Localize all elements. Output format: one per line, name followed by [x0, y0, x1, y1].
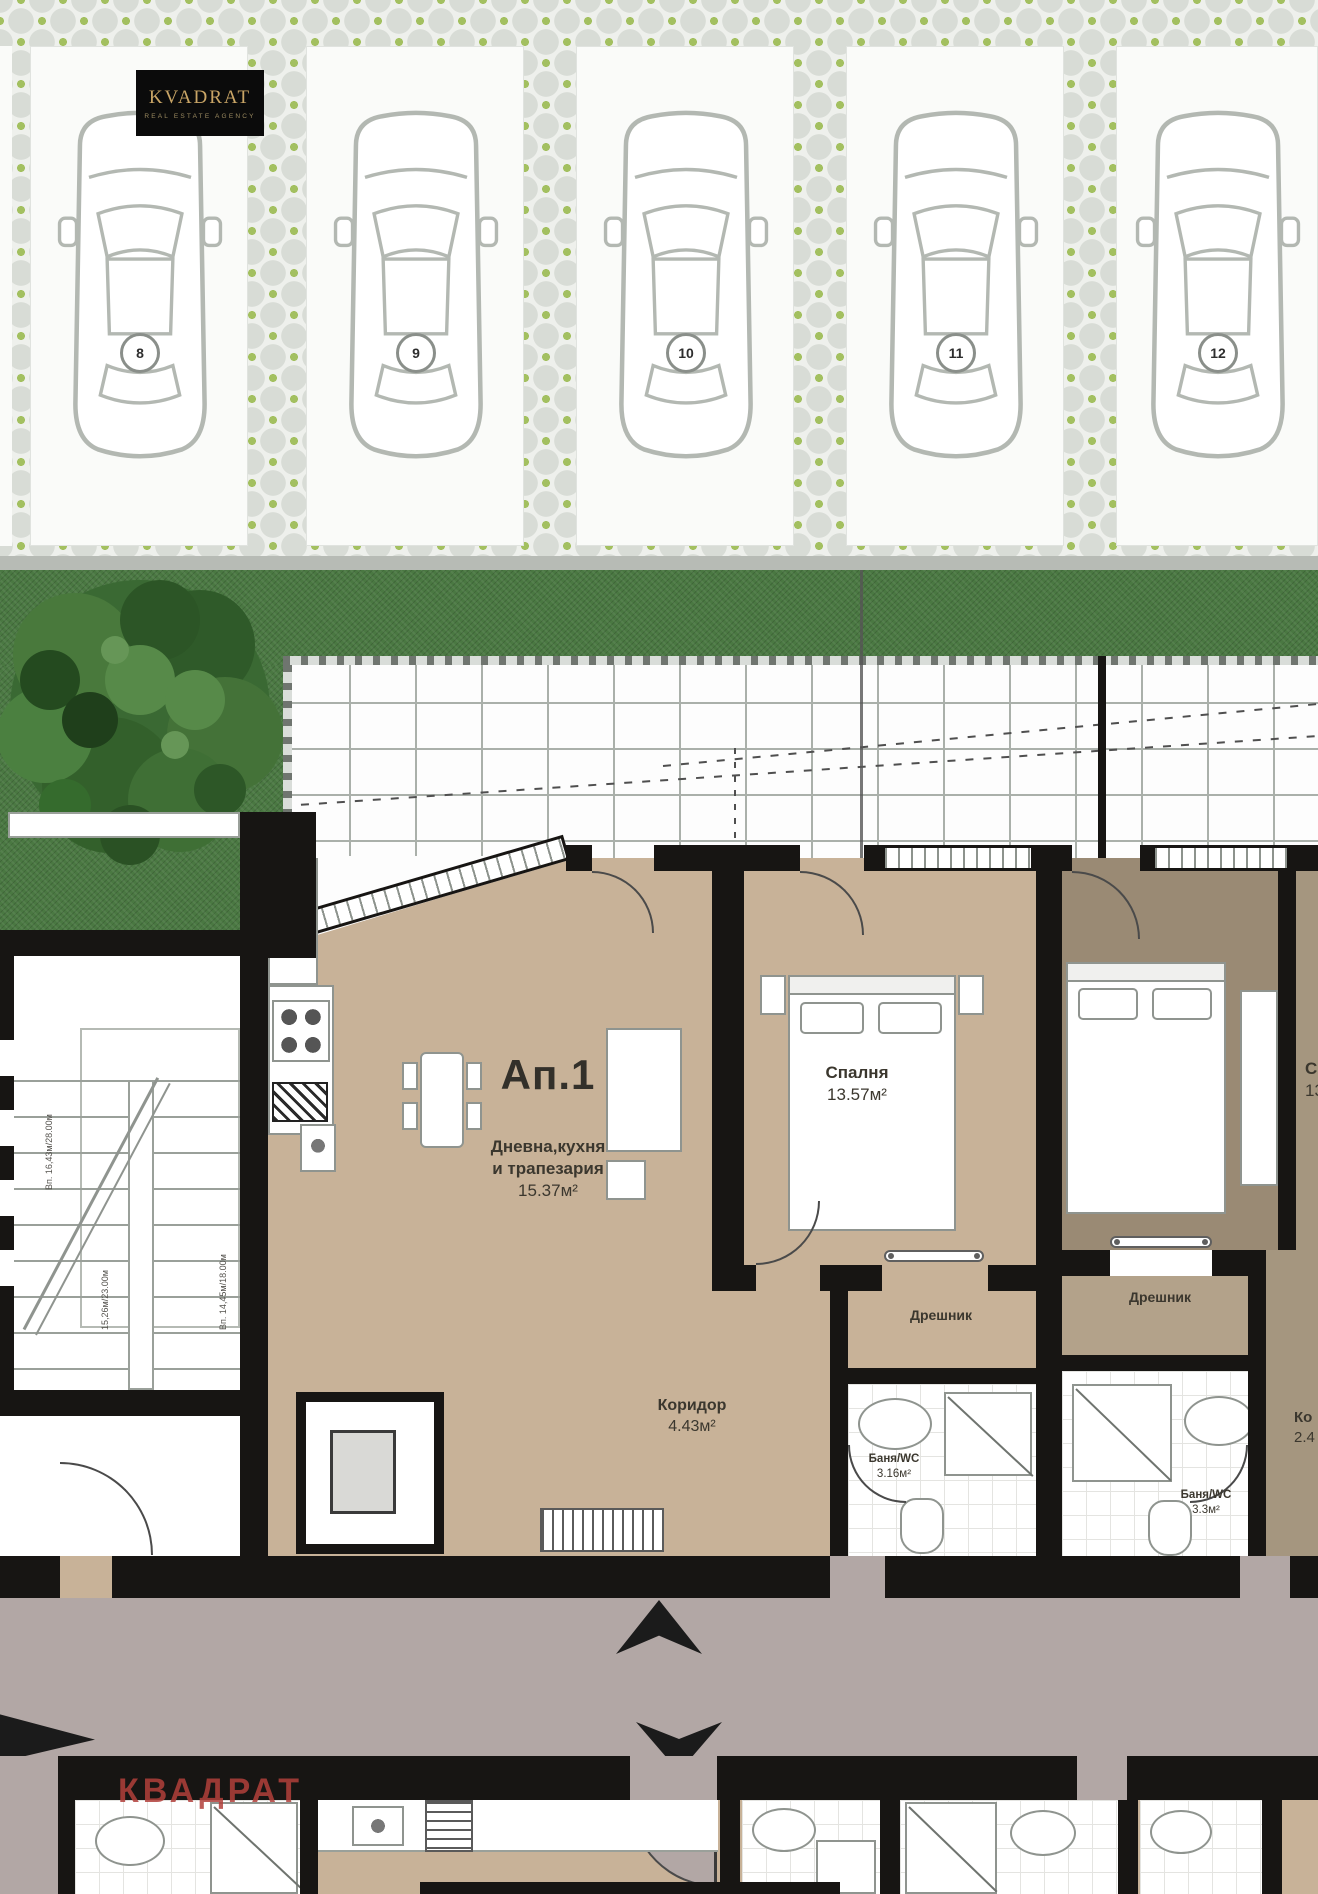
- bath1-name: Баня/WC: [869, 1452, 920, 1467]
- wall-segment: [112, 1556, 830, 1598]
- bath2-area: 3.3м²: [1181, 1503, 1232, 1518]
- parking-spot-number-badge: 11: [936, 333, 976, 373]
- wall-segment: [0, 930, 244, 956]
- parking-area: 8 9 10 11 12 KVADRAT REAL ESTATE AGENCY: [0, 0, 1318, 556]
- wall-segment: [566, 845, 592, 871]
- bedroom-label: Спалня 13.57м²: [826, 1062, 889, 1106]
- adjacent-bedroom-partial-label: С 13: [1305, 1058, 1318, 1102]
- wall-segment: [58, 1800, 75, 1894]
- corridor-area: 4.43м²: [658, 1417, 727, 1438]
- bedroom-name: Спалня: [826, 1062, 889, 1084]
- adjacent-bedroom-partial-area: 13: [1305, 1080, 1318, 1102]
- stair-window: [0, 1180, 14, 1216]
- sink: [95, 1816, 165, 1866]
- stair-dimension-1: Вп. 16,43м/28.00м: [44, 1114, 54, 1190]
- stair-dimension-3: Вп. 14,45м/18.00м: [218, 1254, 228, 1330]
- wall-segment: [300, 1800, 318, 1894]
- closet2-label: Дрешник: [1129, 1288, 1191, 1306]
- bath1-label: Баня/WC 3.16м²: [869, 1452, 920, 1482]
- stair-window: [0, 1250, 14, 1286]
- parking-spot-11: 11: [846, 46, 1064, 546]
- unit-label: Ап.1: [501, 1048, 596, 1103]
- parking-spot-number-badge: 10: [666, 333, 706, 373]
- doorway-gap: [0, 1756, 58, 1800]
- living-room-area: 15.37м²: [491, 1180, 606, 1202]
- wall-segment: [1212, 1250, 1248, 1276]
- adjacent-bedroom-window: [1152, 845, 1290, 871]
- terrace-deck: [283, 656, 1318, 858]
- parking-spot-12: 12: [1116, 46, 1318, 546]
- terrace-divider-line: [860, 570, 863, 858]
- sliding-door-closet1: [884, 1250, 984, 1262]
- wall-segment: [848, 1368, 1036, 1384]
- wall-segment: [0, 956, 14, 1390]
- door-arc-stair-entry: [60, 1462, 153, 1555]
- wall-segment: [1248, 1250, 1266, 1560]
- lower-stair-grille: [425, 1800, 473, 1852]
- adjacent-corridor-edge-floor: [1266, 1250, 1318, 1560]
- agency-logo: KVADRAT REAL ESTATE AGENCY: [136, 70, 264, 136]
- pillow: [1152, 988, 1212, 1020]
- wardrobe: [1240, 990, 1278, 1186]
- car-icon: [331, 107, 501, 470]
- corridor-name: Коридор: [658, 1396, 727, 1417]
- adjacent-corridor-partial-area: 2.4: [1294, 1428, 1315, 1448]
- bedroom-area: 13.57м²: [826, 1084, 889, 1106]
- bath2-name: Баня/WC: [1181, 1488, 1232, 1503]
- chair: [466, 1062, 482, 1090]
- spot-number: 11: [949, 345, 964, 361]
- corridor-label: Коридор 4.43м²: [658, 1396, 727, 1438]
- wall-segment: [712, 1265, 756, 1291]
- kitchen-sink: [300, 1124, 336, 1172]
- wall-segment: [420, 1882, 840, 1894]
- stair-window: [0, 1110, 14, 1146]
- pillow: [800, 1002, 864, 1034]
- adjacent-bedroom-partial-name: С: [1305, 1058, 1318, 1080]
- adjacent-room-edge-floor: [1296, 858, 1318, 1250]
- car-icon: [871, 107, 1041, 470]
- stair-window: [0, 1040, 14, 1076]
- bath2-label: Баня/WC 3.3м²: [1181, 1488, 1232, 1518]
- bedroom-window: [882, 845, 1034, 871]
- wall-segment: [864, 845, 882, 871]
- adjacent-corridor-partial-label: Ко 2.4: [1294, 1408, 1315, 1447]
- wall-segment: [240, 812, 316, 958]
- living-room-name-line1: Дневна,кухня: [491, 1136, 606, 1158]
- pillow: [1078, 988, 1138, 1020]
- living-room-name-line2: и трапезария: [491, 1158, 606, 1180]
- doorway-gap: [1077, 1756, 1127, 1800]
- sink: [858, 1398, 932, 1450]
- sink: [1150, 1810, 1212, 1854]
- doorway-gap: [830, 1556, 885, 1598]
- side-table: [606, 1160, 646, 1200]
- nightstand: [760, 975, 786, 1015]
- wall-segment: [717, 1756, 1077, 1800]
- radiator-grille: [540, 1508, 664, 1552]
- pillow: [878, 1002, 942, 1034]
- chair: [402, 1062, 418, 1090]
- agency-logo-subtitle: REAL ESTATE AGENCY: [144, 113, 255, 120]
- stair-dimension-2: 15,26м/23.00м: [100, 1270, 110, 1330]
- parking-spot-number-badge: 12: [1198, 333, 1238, 373]
- sliding-door-closet2: [1110, 1236, 1212, 1248]
- bath1-area: 3.16м²: [869, 1467, 920, 1482]
- kitchen-sink: [352, 1806, 404, 1846]
- sink: [1184, 1396, 1254, 1446]
- wall-segment: [712, 845, 744, 1291]
- car-icon: [55, 107, 225, 470]
- spot-number: 12: [1210, 345, 1226, 361]
- wall-segment: [0, 1390, 268, 1416]
- parking-spot-10: 10: [576, 46, 794, 546]
- car-icon: [601, 107, 771, 470]
- wall-segment: [1062, 1355, 1248, 1371]
- closet1-label: Дрешник: [910, 1306, 972, 1324]
- wall-segment: [1036, 845, 1062, 1560]
- bed-headboard: [788, 975, 956, 995]
- wall-segment: [885, 1556, 1240, 1598]
- agency-logo-title: KVADRAT: [149, 87, 251, 109]
- wall-segment: [1278, 871, 1296, 1250]
- doorway-gap: [630, 1756, 717, 1800]
- terrace-divider-wall: [1098, 656, 1106, 858]
- bed-headboard: [1066, 962, 1226, 982]
- terrace-railing-top: [283, 656, 1318, 665]
- doorway-gap: [60, 1556, 112, 1598]
- wall-segment: [1290, 1556, 1318, 1598]
- car-icon: [1133, 107, 1303, 470]
- toilet: [900, 1498, 944, 1554]
- spot-number: 9: [412, 345, 420, 361]
- nightstand: [958, 975, 984, 1015]
- sink: [1010, 1810, 1076, 1856]
- parking-spot-number-badge: 8: [120, 333, 160, 373]
- kitchen-appliance-hatch: [272, 1082, 328, 1122]
- wall-segment: [1140, 845, 1152, 871]
- parking-spot-number-badge: 9: [396, 333, 436, 373]
- wall-segment: [820, 1265, 882, 1291]
- terrace-annotation-lines: [283, 656, 1318, 858]
- watermark: КВАДРАТ: [118, 1772, 303, 1811]
- dining-table: [420, 1052, 464, 1148]
- sink: [752, 1808, 816, 1852]
- wall-segment: [720, 1800, 740, 1894]
- wall-segment: [1262, 1800, 1282, 1894]
- living-room-label: Дневна,кухня и трапезария 15.37м²: [491, 1136, 606, 1202]
- wall-segment: [988, 1265, 1036, 1291]
- wall-segment: [880, 1800, 900, 1894]
- wall-segment: [0, 1556, 60, 1598]
- balcony-railing: [8, 812, 240, 838]
- wall-segment: [1127, 1756, 1318, 1800]
- wall-segment: [1062, 1250, 1110, 1276]
- spot-number: 10: [678, 345, 694, 361]
- chair: [402, 1102, 418, 1130]
- parking-edge-strip: [0, 46, 12, 546]
- stove-icon: [272, 1000, 330, 1062]
- sofa: [606, 1028, 682, 1152]
- wall-segment: [240, 956, 268, 1560]
- doorway-gap: [1240, 1556, 1290, 1598]
- spot-number: 8: [136, 345, 144, 361]
- wall-segment: [744, 845, 800, 871]
- wall-segment: [1062, 845, 1072, 871]
- wall-segment: [1118, 1800, 1138, 1894]
- chair: [466, 1102, 482, 1130]
- lower-hall-pocket: [0, 1800, 58, 1894]
- floor-plan-image: 8 9 10 11 12 KVADRAT REAL ESTATE AGENCY: [0, 0, 1318, 1894]
- wall-segment: [1290, 845, 1318, 871]
- adjacent-corridor-partial-name: Ко: [1294, 1408, 1315, 1428]
- elevator-cab: [330, 1430, 396, 1514]
- wall-segment: [830, 1291, 848, 1560]
- parking-spot-9: 9: [306, 46, 524, 546]
